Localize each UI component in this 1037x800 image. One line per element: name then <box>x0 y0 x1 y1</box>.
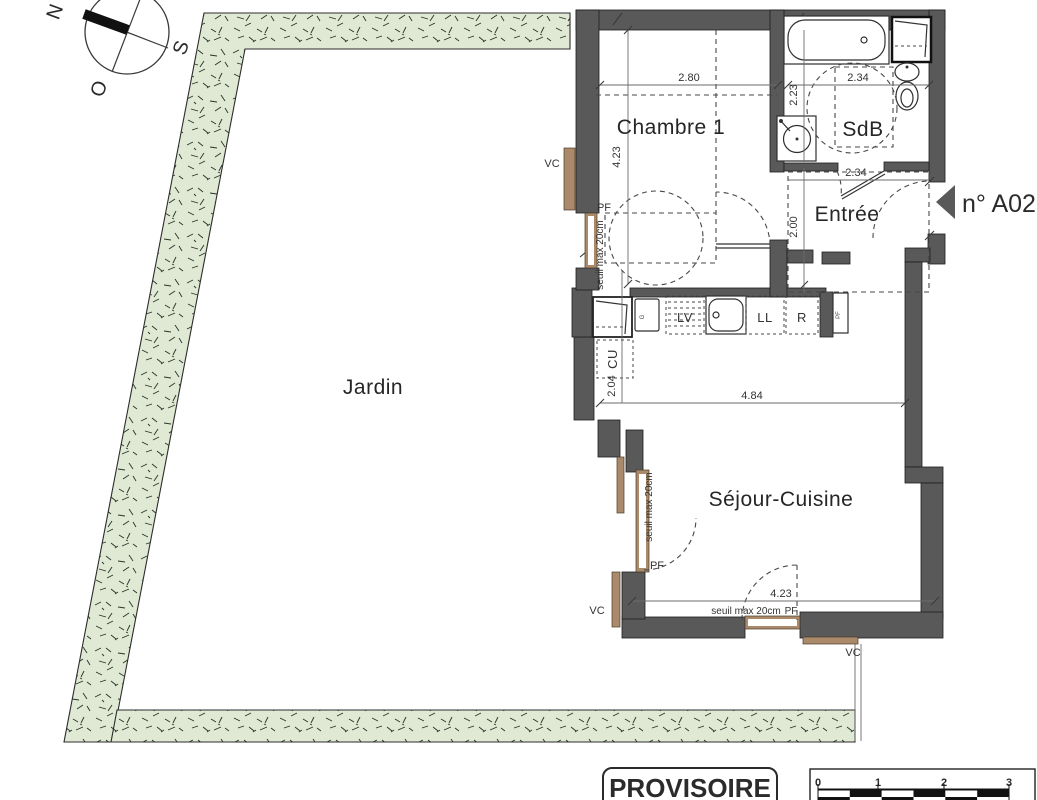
dishwasher-label: LV <box>677 310 693 325</box>
water-heater: CU <box>597 340 633 378</box>
compass-icon: N S O <box>43 0 194 100</box>
room-label-sdb: SdB <box>842 118 883 141</box>
unit-number: n° A02 <box>962 190 1036 218</box>
dishwasher: LV <box>666 296 704 334</box>
label-seuil-sejour-bottom: seuil max 20cm <box>711 606 780 617</box>
garden-wall-bottom <box>111 710 855 742</box>
label-vc-left: VC <box>544 158 559 170</box>
compass-needle <box>84 14 128 30</box>
niche-label: PF <box>836 311 842 319</box>
kitchen-cabinet: G <box>635 299 659 331</box>
door-swing-sdb <box>837 171 841 196</box>
label-vc-bottomleft: VC <box>589 605 604 617</box>
floorplan-page: G LV LL R P <box>0 0 1037 800</box>
room-label-sejour: Séjour-Cuisine <box>709 488 854 511</box>
compass-n: N <box>43 1 69 22</box>
label-pf-sejour: PF <box>650 560 664 572</box>
room-label-jardin: Jardin <box>343 376 403 399</box>
dim-entree-width: 2.34 <box>845 167 866 179</box>
shutter-sejour-bottom <box>803 637 858 644</box>
bathroom-sink <box>777 116 816 161</box>
unit-marker: n° A02 <box>936 185 1036 219</box>
floorplan-drawing: G LV LL R P <box>0 0 1037 800</box>
dim-chambre-height: 4.23 <box>611 146 623 167</box>
dim-chambre-width: 2.80 <box>678 72 699 84</box>
dim-sdb-width: 2.34 <box>847 72 868 84</box>
shower-kitchen <box>593 297 632 337</box>
dim-kitchen-height: 2.04 <box>606 375 618 396</box>
fridge-label: R <box>797 310 807 325</box>
dim-sejour-width: 4.23 <box>770 588 791 600</box>
shower-sdb <box>892 17 931 62</box>
compass-s: S <box>169 38 194 58</box>
dim-kitchen-width: 4.84 <box>741 390 762 402</box>
door-swing-chambre <box>716 192 770 246</box>
water-heater-label: CU <box>605 349 620 369</box>
niche: PF <box>833 293 848 333</box>
room-label-chambre: Chambre 1 <box>617 116 725 139</box>
fridge: R <box>786 296 818 334</box>
shutter-sejour-left-low <box>612 572 620 627</box>
toilet <box>895 63 919 110</box>
cabinet-label: G <box>640 314 646 319</box>
fixtures: G LV LL R P <box>593 16 931 378</box>
shutter-sejour-left-up <box>617 457 624 513</box>
compass-o: O <box>86 78 112 100</box>
provisoire-stamp: PROVISOIRE <box>603 768 777 800</box>
door-swing-entrance <box>873 181 930 238</box>
bathtub <box>784 16 889 64</box>
label-pf-chambre: PF <box>597 202 611 214</box>
stamp-text: PROVISOIRE <box>609 773 771 800</box>
dim-sdb-height: 2.23 <box>788 84 800 105</box>
label-seuil-chambre: seuil max 20cm <box>595 220 606 289</box>
scale-bar: 0 1 2 3 <box>810 769 1035 800</box>
label-seuil-sejour-left: seuil max 20cm <box>644 472 655 541</box>
entrance-arrow-icon <box>936 185 955 219</box>
washing-machine-label: LL <box>757 310 772 325</box>
washing-machine: LL <box>746 296 784 334</box>
label-pf-sejour-bottom: PF <box>785 606 798 617</box>
turning-circle-chambre <box>609 191 703 285</box>
label-vc-bottomright: VC <box>845 647 860 659</box>
garden-wall-top-left <box>64 13 570 742</box>
dim-entree-height: 2.00 <box>788 216 800 237</box>
kitchen-sink <box>706 296 746 334</box>
shutter-vc-left <box>564 148 575 210</box>
room-label-entree: Entrée <box>815 203 880 226</box>
